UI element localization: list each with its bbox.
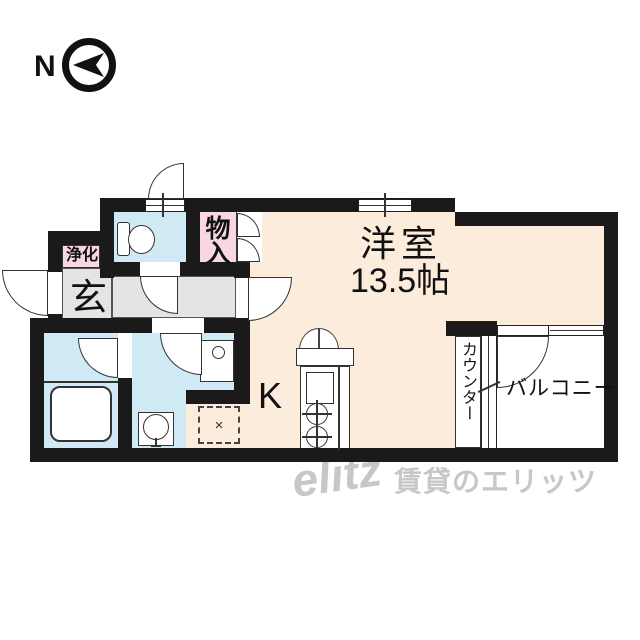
north-label: N	[34, 52, 56, 82]
balcony-label: バルコニー	[506, 378, 616, 399]
refrigerator-mark: ×	[215, 417, 224, 434]
washbasin-tap-icon	[151, 445, 161, 447]
wall-segment	[30, 318, 152, 333]
refrigerator-space-icon: ×	[198, 406, 240, 444]
watermark-text: 賃貸のエリッツ	[394, 460, 597, 500]
wall-segment	[234, 318, 250, 398]
entrance-label: 玄	[70, 279, 107, 316]
stove-burner-tick	[316, 400, 318, 426]
wall-segment	[100, 262, 140, 276]
wall-segment	[186, 390, 250, 404]
counter-window	[481, 336, 497, 448]
entrance-door-arc	[2, 270, 48, 316]
window-glazing-line	[550, 330, 603, 331]
kitchen-label: K	[258, 378, 282, 414]
purifier-label: 浄化	[66, 248, 98, 264]
kitchen-counter-top	[296, 348, 354, 366]
storage-label: 物入	[203, 215, 228, 265]
window-glazing-line	[146, 205, 184, 206]
wall-segment	[446, 321, 497, 336]
wall-segment	[604, 212, 618, 462]
window-tick	[384, 193, 386, 217]
wall-segment	[234, 262, 250, 278]
washer-drain-icon	[212, 346, 225, 359]
counter-label: カウンター	[459, 341, 475, 421]
window-glazing-line	[488, 336, 489, 448]
washbasin-bowl-icon	[143, 414, 169, 440]
bathtub-edge-line	[44, 381, 118, 383]
toilet-bowl-icon	[128, 225, 155, 254]
main-room-size-label: 13.5帖	[350, 264, 450, 298]
wall-segment	[48, 231, 100, 245]
window-tick	[162, 193, 164, 217]
wall-segment	[30, 318, 44, 462]
stove-burner-tick	[316, 424, 318, 448]
main-room-floor	[455, 226, 604, 336]
floorplan-canvas: elitz 賃貸のエリッツ ×	[0, 0, 640, 640]
main-room-label: 洋室	[360, 226, 442, 262]
balcony-door-frame	[497, 325, 549, 336]
wall-segment	[30, 448, 618, 462]
kitchen-unit-divider-line	[338, 366, 340, 450]
wall-segment	[118, 378, 132, 448]
bathtub-icon	[50, 386, 112, 442]
kitchen-sink-icon	[306, 372, 334, 404]
toilet-window-arc	[148, 163, 184, 199]
wall-segment	[455, 212, 618, 226]
